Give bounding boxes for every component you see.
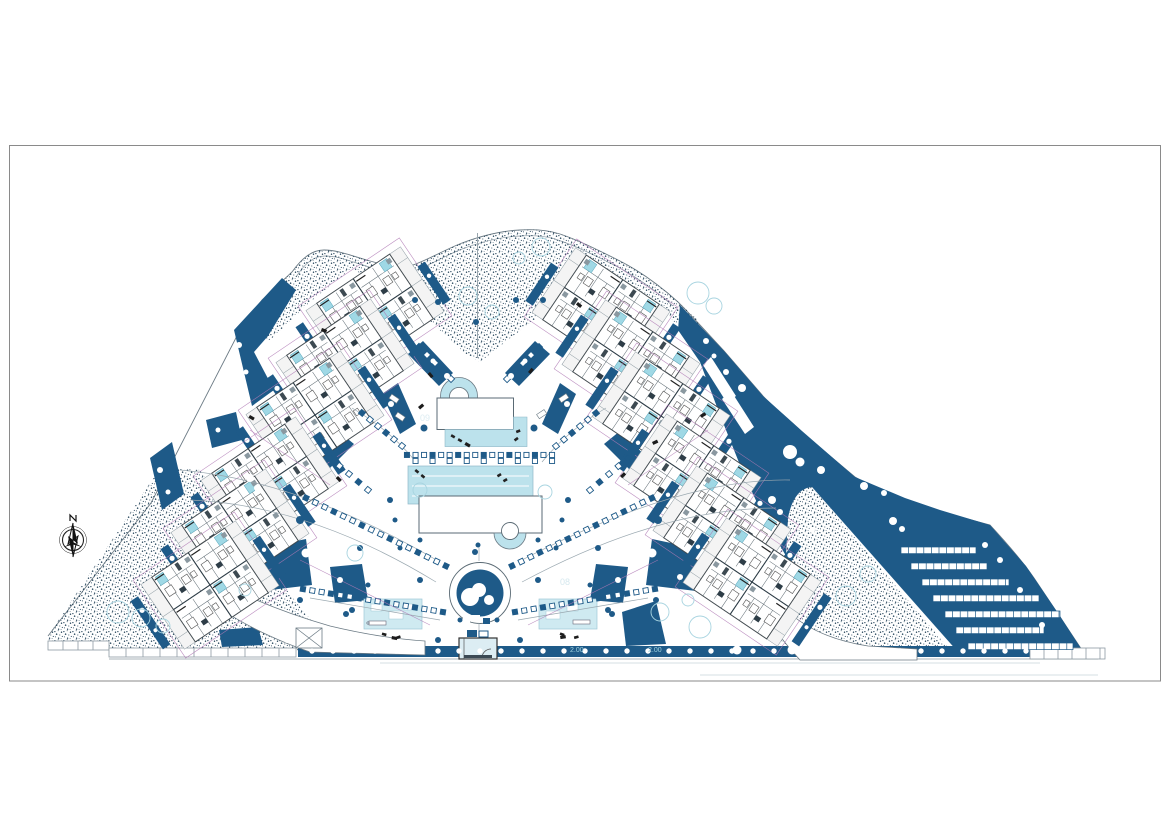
svg-text:2.00: 2.00 (570, 647, 584, 654)
svg-text:09: 09 (420, 413, 430, 423)
svg-text:08: 08 (560, 577, 570, 587)
svg-text:2.00: 2.00 (648, 647, 662, 654)
